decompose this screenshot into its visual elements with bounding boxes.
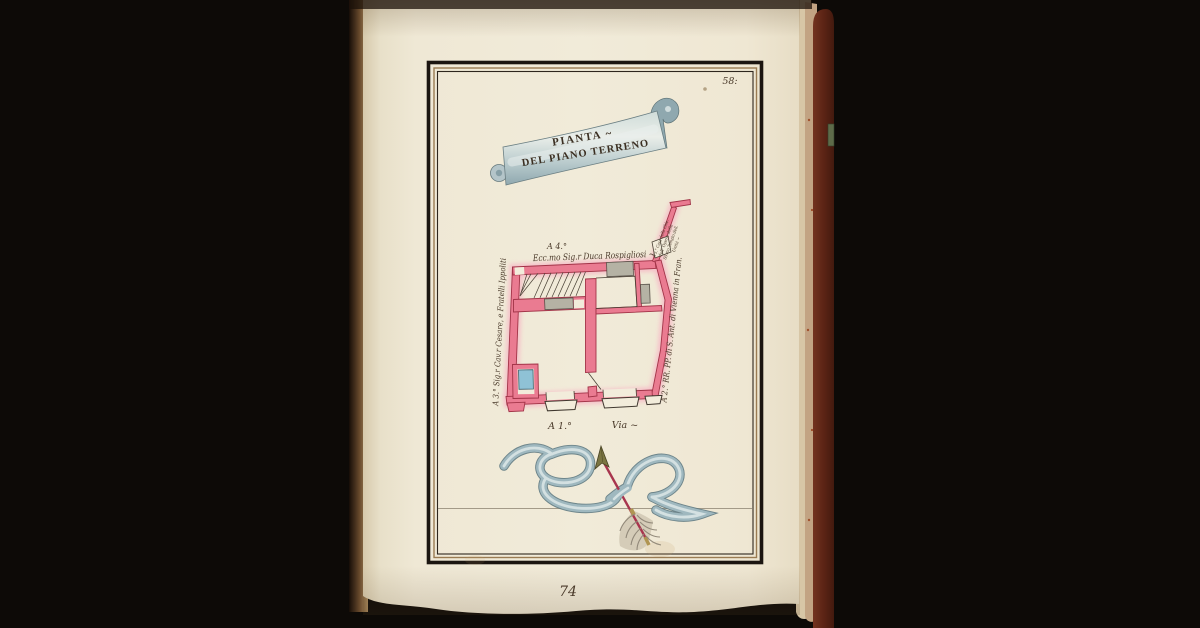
- niche-stair: [545, 298, 574, 310]
- label-via: Via ~: [612, 420, 638, 431]
- corner-foot: [507, 402, 525, 411]
- water-basin: [519, 370, 534, 390]
- wall-central-stub: [588, 386, 597, 397]
- folio-number-pencil: 74: [559, 584, 577, 600]
- banner-right-curl: [665, 106, 671, 112]
- plate-number: 58:: [722, 76, 737, 87]
- banner-left-curl-center: [496, 170, 502, 176]
- label-a1: A 1.°: [547, 421, 572, 432]
- scanned-book-photo: 58: PIANTA ~ DEL PIANO TERRENO: [0, 0, 1200, 628]
- bookmark-tab: [828, 124, 834, 146]
- wall-central: [586, 279, 597, 373]
- niche-corridor: [641, 284, 651, 303]
- niche-top: [607, 261, 634, 276]
- scan-canvas: 58: PIANTA ~ DEL PIANO TERRENO: [0, 0, 1200, 628]
- book-top-shadow: [349, 0, 812, 9]
- label-a4-ref: A 4.°: [546, 242, 567, 251]
- book-cover: [813, 9, 834, 628]
